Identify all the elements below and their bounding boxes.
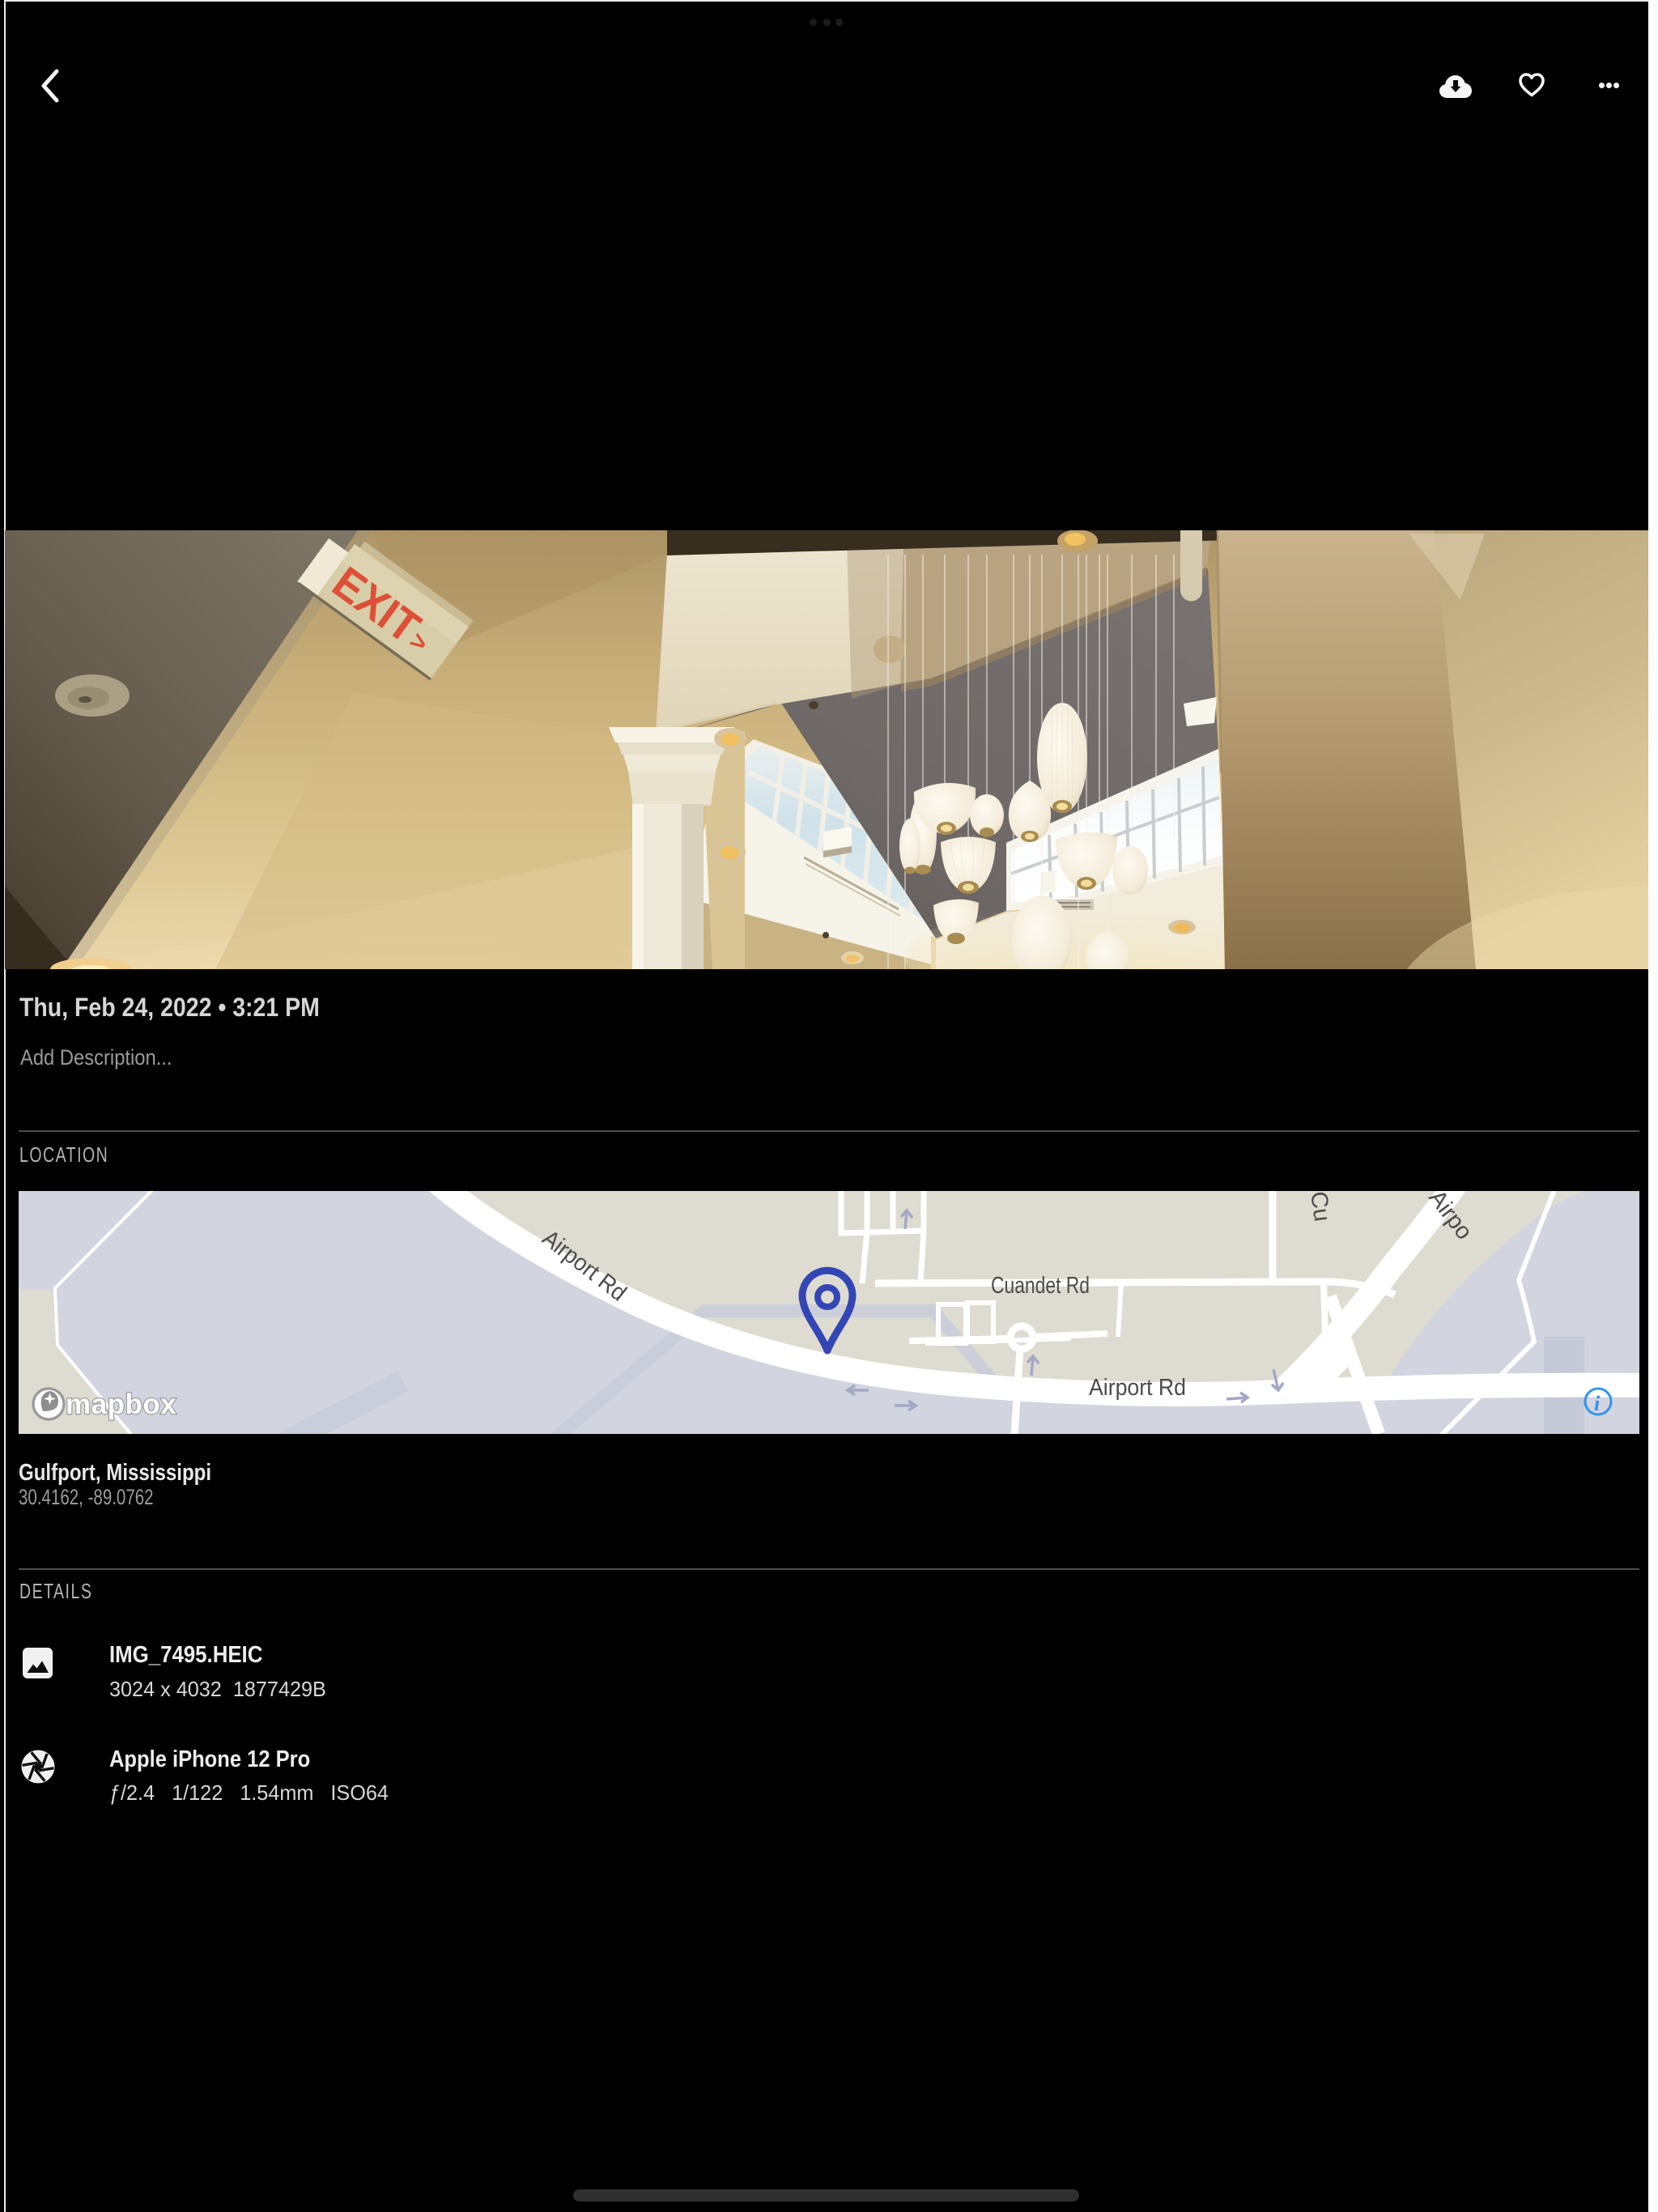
svg-text:Cu: Cu [1305, 1191, 1335, 1223]
svg-text:Cuandet Rd: Cuandet Rd [991, 1273, 1090, 1299]
svg-text:mapbox: mapbox [66, 1389, 176, 1420]
svg-text:Airport Rd: Airport Rd [1089, 1375, 1186, 1401]
svg-text:i: i [1594, 1392, 1601, 1415]
